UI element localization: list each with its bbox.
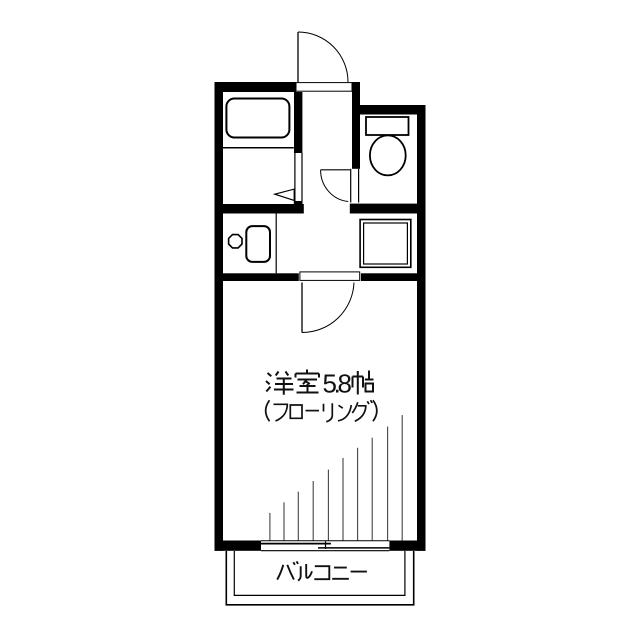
svg-text:5.8: 5.8 xyxy=(323,369,353,399)
